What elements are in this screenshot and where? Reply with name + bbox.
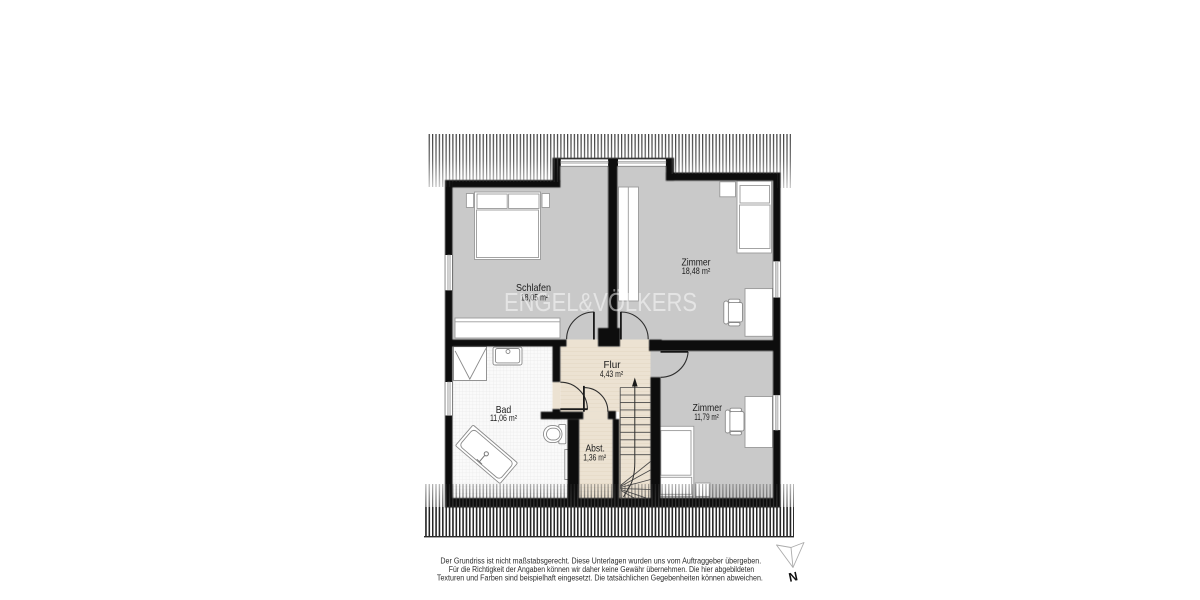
svg-text:1,36 m²: 1,36 m² [583, 452, 606, 462]
svg-text:4,43 m²: 4,43 m² [600, 369, 623, 379]
svg-text:11,06 m²: 11,06 m² [490, 413, 517, 423]
svg-text:Texturen und Farben sind beisp: Texturen und Farben sind beispielhaft ei… [437, 574, 763, 583]
svg-text:N: N [787, 569, 799, 585]
svg-text:ENGEL&VÖLKERS: ENGEL&VÖLKERS [504, 289, 697, 317]
svg-text:18,48 m²: 18,48 m² [682, 266, 711, 276]
svg-text:11,79 m²: 11,79 m² [694, 412, 719, 422]
